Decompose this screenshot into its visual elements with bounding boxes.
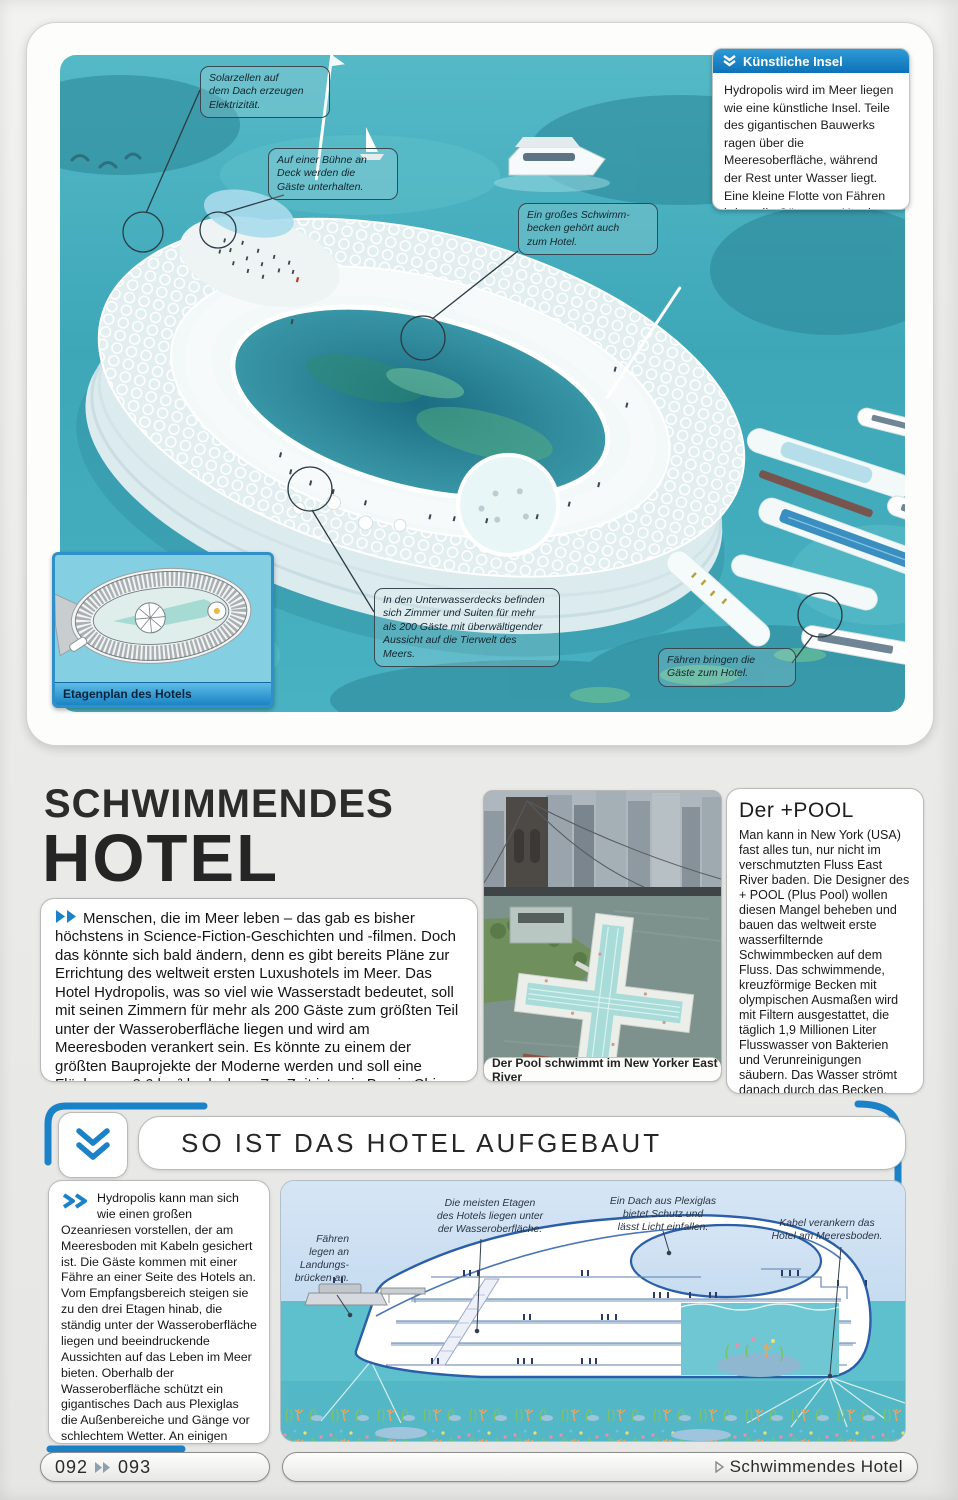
footer-page-numbers: 092 093: [40, 1452, 270, 1482]
callout-solar: Solarzellen auf dem Dach erzeugen Elektr…: [200, 66, 330, 118]
how-section-title: SO IST DAS HOTEL AUFGEBAUT: [139, 1128, 662, 1159]
diagram-label-ferries: Fähren legen an Landungs- brücken an.: [287, 1233, 349, 1285]
book-page: Solarzellen auf dem Dach erzeugen Elektr…: [0, 0, 958, 1500]
page-number-right: 093: [118, 1457, 151, 1478]
chevron-double-right-icon: [94, 1462, 112, 1473]
how-section-paragraph: Hydropolis kann man sich wie einen große…: [48, 1180, 270, 1444]
diagram-label-cables: Kabel verankern das Hotel am Meeresboden…: [769, 1217, 885, 1243]
how-section-body: Hydropolis kann man sich wie einen große…: [61, 1191, 257, 1444]
intro-text: Menschen, die im Meer leben – das gab es…: [55, 910, 458, 1082]
floorplan-inset: Etagenplan des Hotels: [52, 552, 274, 708]
page-number-left: 092: [55, 1457, 88, 1478]
how-section-icon-box: [58, 1112, 128, 1178]
callout-pool: Ein großes Schwimm- becken gehört auch z…: [518, 203, 658, 255]
chevron-double-down-icon: [722, 55, 737, 68]
plus-pool-photo-drawing: [484, 791, 721, 1081]
floorplan-caption: Etagenplan des Hotels: [55, 682, 271, 705]
cross-section-diagram: Fähren legen an Landungs- brücken an. Di…: [280, 1180, 906, 1442]
triangle-right-icon: [715, 1461, 724, 1473]
footer-section-tab: Schwimmendes Hotel: [282, 1452, 918, 1482]
article-title-line2: HOTEL: [42, 820, 279, 897]
callout-ferries: Fähren bringen die Gäste zum Hotel.: [658, 648, 796, 687]
chevron-double-right-icon: [61, 1193, 91, 1209]
info-box-header: Künstliche Insel: [713, 49, 909, 73]
diagram-label-roof: Ein Dach aus Plexiglas bietet Schutz und…: [603, 1195, 723, 1234]
callout-stage: Auf einer Bühne an Deck werden die Gäste…: [268, 148, 398, 200]
photo-caption: Der Pool schwimmt im New Yorker East Riv…: [484, 1057, 721, 1081]
floorplan-drawing: [55, 555, 265, 680]
intro-paragraph: Menschen, die im Meer leben – das gab es…: [40, 898, 478, 1082]
sidebar-body: Man kann in New York (USA) fast alles tu…: [739, 828, 911, 1094]
how-section-header: SO IST DAS HOTEL AUFGEBAUT: [138, 1116, 906, 1170]
chevron-double-right-icon: [55, 910, 79, 923]
info-box-kuenstliche-insel: Künstliche Insel Hydropolis wird im Meer…: [712, 48, 910, 210]
info-box-body: Hydropolis wird im Meer liegen wie eine …: [713, 73, 909, 210]
chevron-double-down-icon: [59, 1113, 127, 1177]
info-box-title: Künstliche Insel: [743, 54, 843, 69]
sidebar-title: Der +POOL: [739, 799, 911, 823]
sidebar-plus-pool: Der +POOL Man kann in New York (USA) fas…: [726, 788, 924, 1094]
diagram-label-floors: Die meisten Etagen des Hotels liegen unt…: [431, 1197, 549, 1236]
callout-underwater-decks: In den Unterwasserdecks befinden sich Zi…: [374, 588, 560, 667]
plus-pool-photo: Der Pool schwimmt im New Yorker East Riv…: [483, 790, 722, 1082]
footer-section-label: Schwimmendes Hotel: [730, 1457, 903, 1477]
